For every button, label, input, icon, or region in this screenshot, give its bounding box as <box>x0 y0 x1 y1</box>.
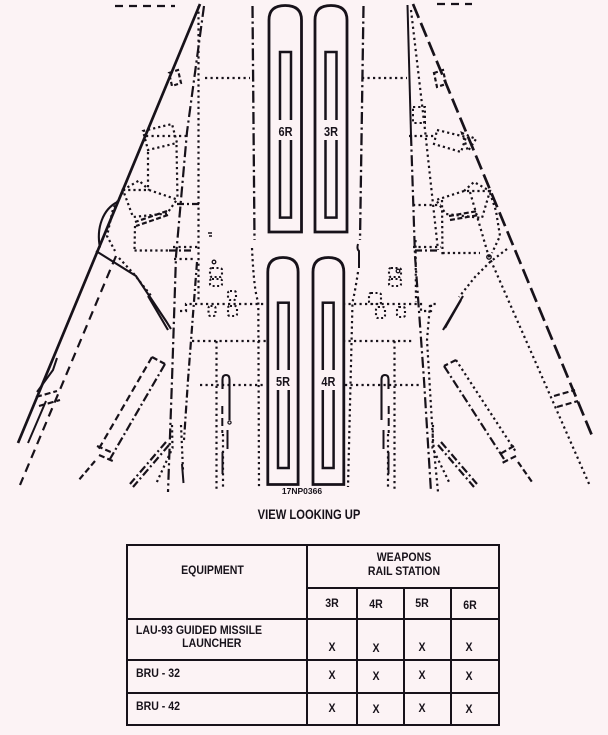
svg-text:6R: 6R <box>279 124 294 139</box>
svg-text:3R: 3R <box>324 124 339 139</box>
svg-text:4R: 4R <box>321 374 336 389</box>
svg-text:5R: 5R <box>276 374 291 389</box>
